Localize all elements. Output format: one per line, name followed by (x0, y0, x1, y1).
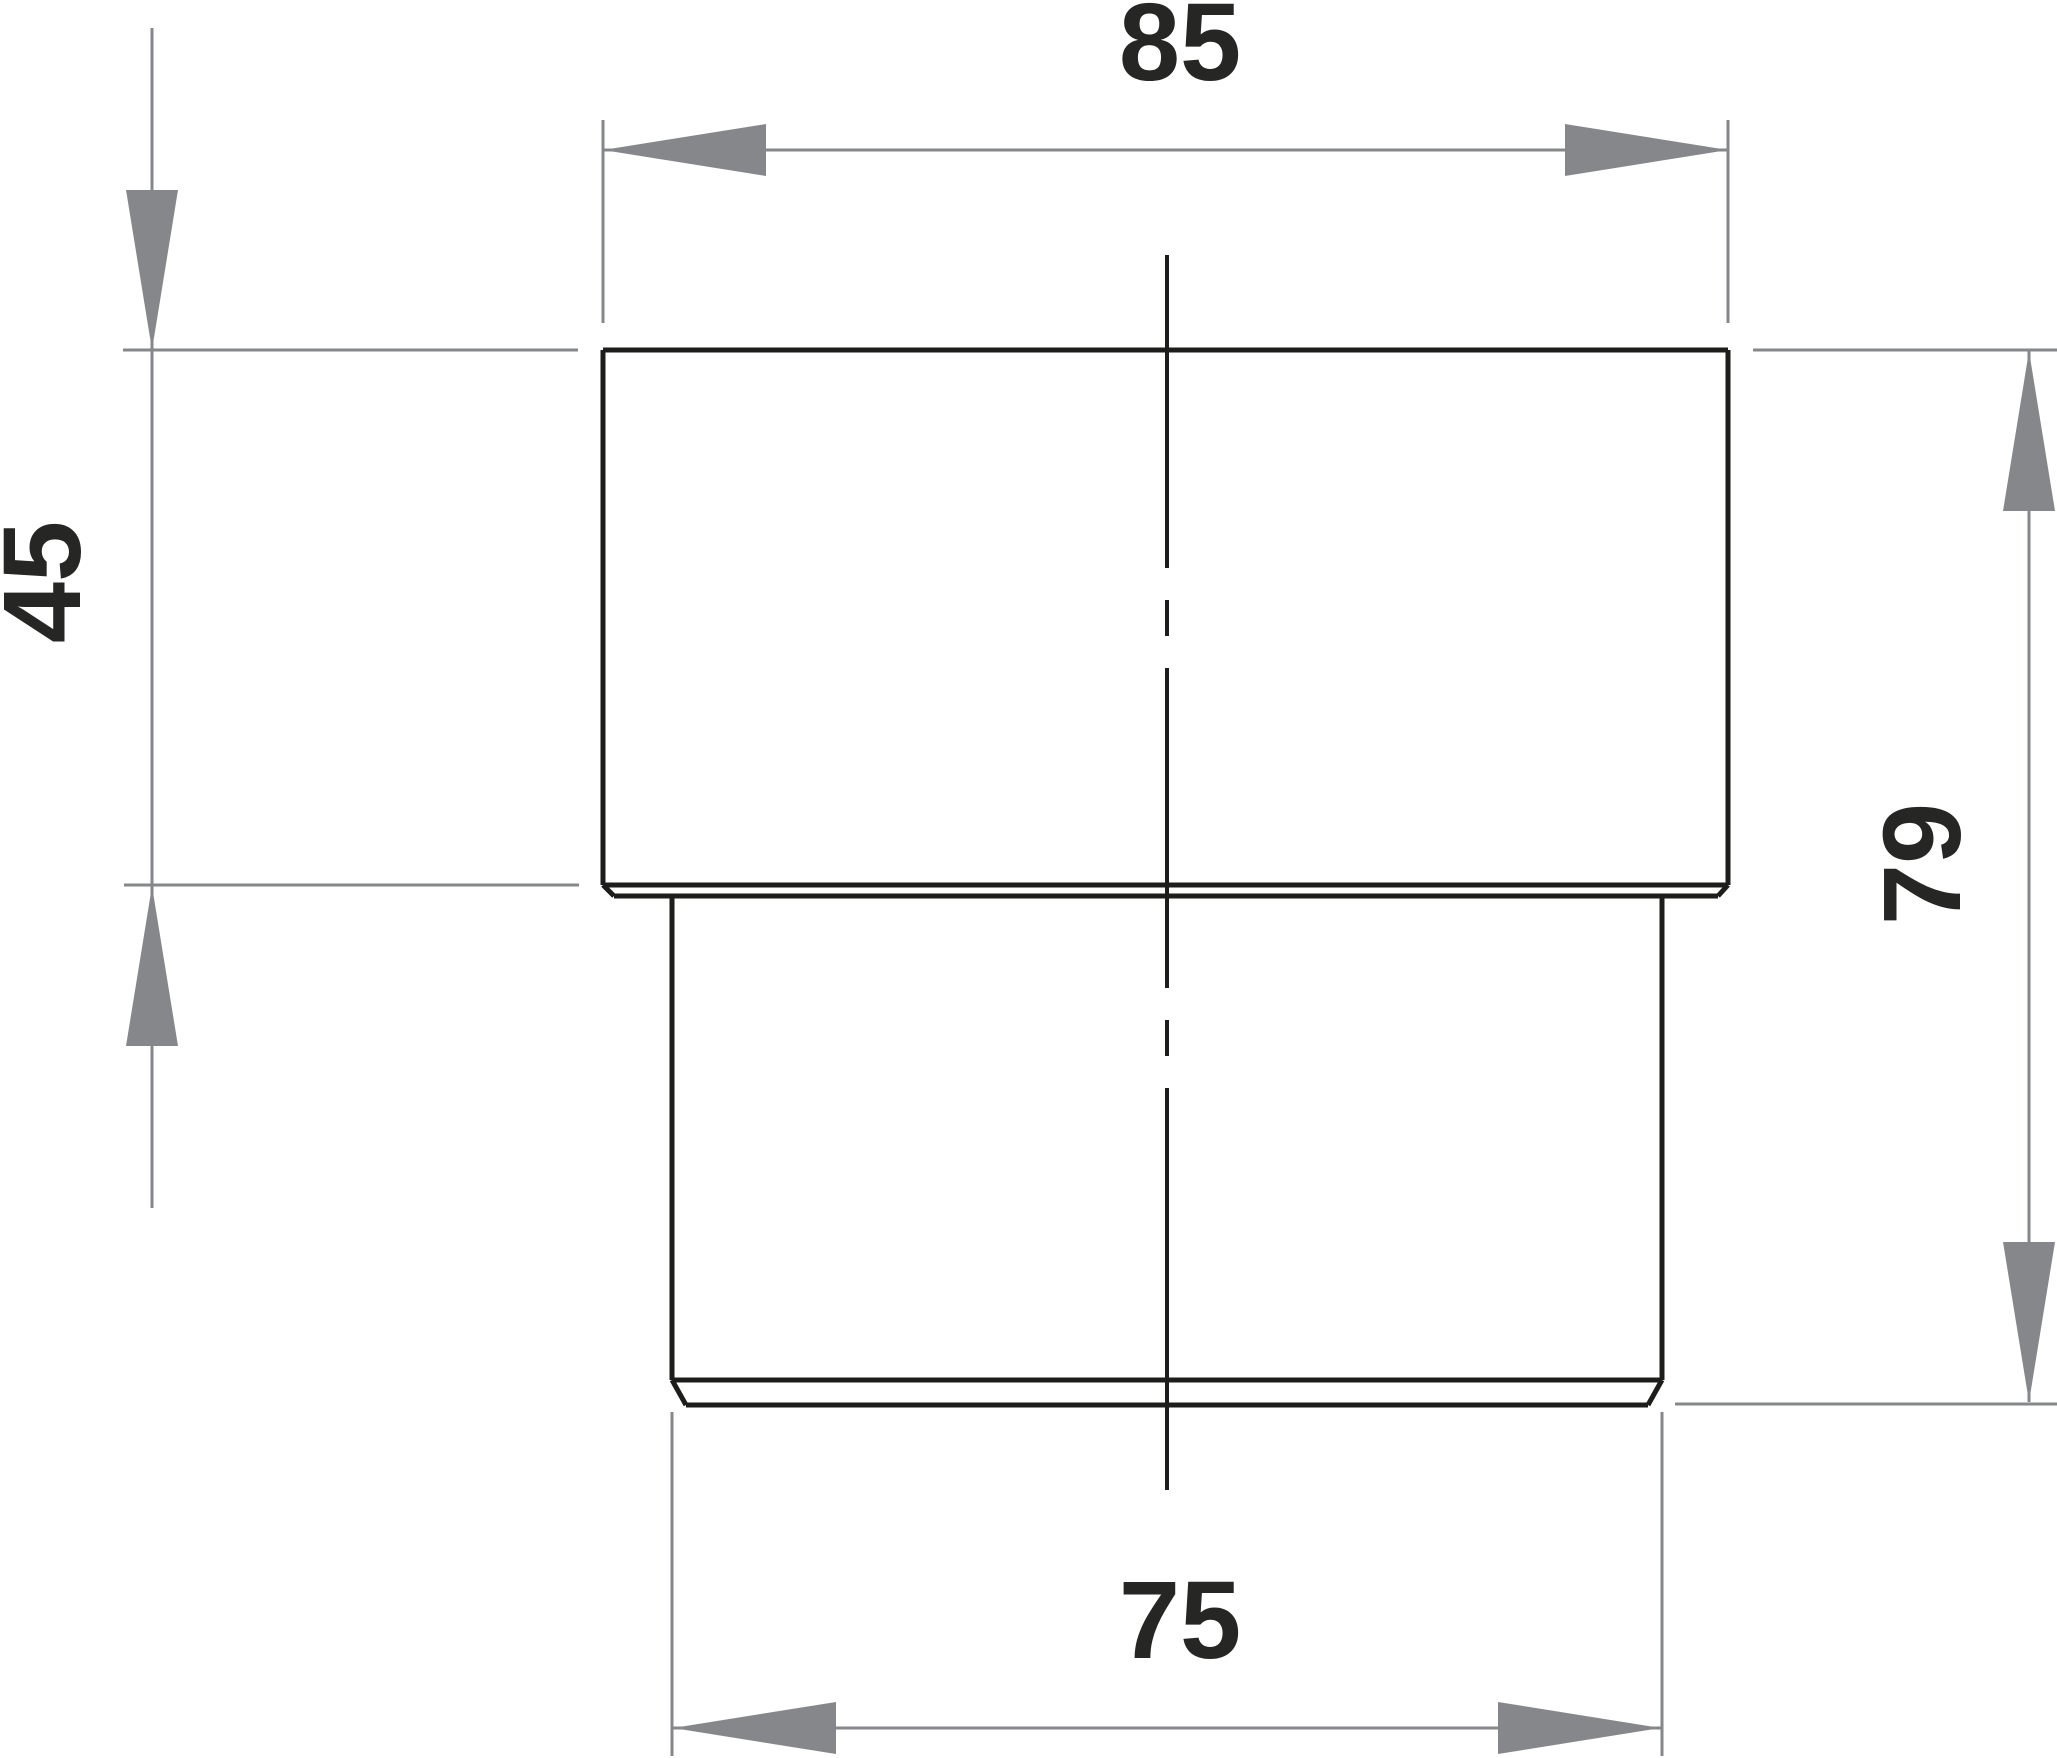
dim-75-arrowhead-right (1498, 1702, 1661, 1754)
dimension-label-left-height: 45 (0, 521, 104, 643)
dim-79-arrowhead-top (2003, 351, 2055, 511)
dimension-label-bottom-width: 75 (1119, 1559, 1241, 1682)
dim-85-arrowhead-right (1565, 124, 1728, 176)
technical-drawing-page: 85 45 79 75 (0, 0, 2057, 1758)
dim-79-arrowhead-bottom (2003, 1242, 2055, 1402)
dimension-label-top-width: 85 (1119, 0, 1241, 104)
dimension-left-height: 45 (0, 28, 579, 1208)
dimension-right-height: 79 (1675, 350, 2057, 1404)
dim-45-arrowhead-top (126, 190, 178, 350)
dim-45-arrowhead-bottom (126, 886, 178, 1046)
dim-75-arrowhead-left (673, 1702, 836, 1754)
spigot-bottom-chamfer-left (672, 1380, 686, 1405)
spigot-bottom-chamfer-right (1648, 1380, 1662, 1405)
dimension-label-right-height: 79 (1861, 803, 1984, 925)
dim-85-arrowhead-left (603, 124, 766, 176)
technical-drawing-canvas: 85 45 79 75 (0, 0, 2057, 1758)
